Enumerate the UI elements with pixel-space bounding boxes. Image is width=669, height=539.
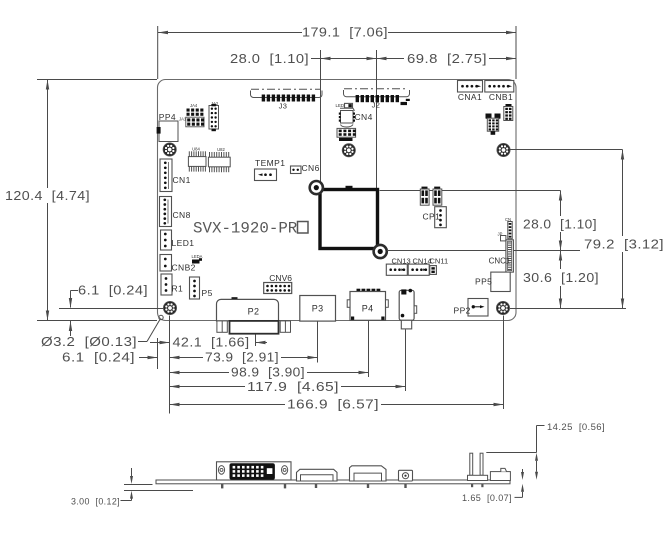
svg-text:28.0 [1.10]: 28.0 [1.10] [523, 217, 597, 232]
svg-text:CNC1: CNC1 [489, 256, 511, 265]
svg-text:120.4 [4.74]: 120.4 [4.74] [5, 188, 90, 203]
svg-text:CN8: CN8 [173, 210, 191, 220]
svg-text:LED1: LED1 [172, 238, 195, 248]
svg-text:6.1 [0.24]: 6.1 [0.24] [78, 283, 148, 298]
svg-text:CNB1: CNB1 [489, 92, 513, 102]
svg-text:CNA1: CNA1 [458, 92, 482, 102]
svg-text:CN6: CN6 [302, 163, 320, 173]
svg-text:R1: R1 [172, 284, 184, 294]
svg-text:69.8 [2.75]: 69.8 [2.75] [407, 51, 487, 66]
svg-text:79.2 [3.12]: 79.2 [3.12] [584, 237, 664, 252]
svg-text:CN4: CN4 [355, 112, 373, 122]
svg-text:1.65 [0.07]: 1.65 [0.07] [462, 493, 512, 504]
svg-text:P2: P2 [248, 307, 260, 317]
svg-text:28.0 [1.10]: 28.0 [1.10] [230, 51, 309, 66]
svg-text:P5: P5 [202, 288, 213, 298]
svg-text:P3: P3 [312, 304, 324, 314]
svg-text:U84: U84 [192, 146, 200, 151]
svg-text:14.25 [0.56]: 14.25 [0.56] [547, 422, 605, 433]
svg-text:30.6 [1.20]: 30.6 [1.20] [523, 270, 599, 285]
svg-text:P4: P4 [362, 304, 374, 314]
svg-text:CNB2: CNB2 [172, 263, 196, 273]
svg-text:73.9 [2.91]: 73.9 [2.91] [205, 350, 279, 365]
svg-text:PP2: PP2 [454, 306, 471, 316]
svg-text:6.1 [0.24]: 6.1 [0.24] [62, 350, 135, 365]
svg-text:117.9 [4.65]: 117.9 [4.65] [247, 379, 339, 394]
svg-text:42.1 [1.66]: 42.1 [1.66] [173, 335, 250, 350]
svg-text:166.9 [6.57]: 166.9 [6.57] [287, 397, 379, 412]
svg-text:98.9 [3.90]: 98.9 [3.90] [231, 365, 305, 380]
svg-text:CNV6: CNV6 [269, 273, 292, 283]
svg-text:179.1 [7.06]: 179.1 [7.06] [302, 24, 388, 39]
svg-text:J2: J2 [372, 101, 381, 110]
svg-text:TEMP1: TEMP1 [255, 158, 285, 168]
svg-text:CN11: CN11 [430, 257, 449, 266]
svg-text:PP5: PP5 [475, 277, 492, 287]
svg-text:LED: LED [336, 103, 345, 108]
svg-text:SVX-1920-PR: SVX-1920-PR [193, 220, 298, 238]
svg-text:CP1: CP1 [423, 212, 441, 222]
svg-text:JA4: JA4 [190, 103, 198, 108]
svg-text:U82: U82 [217, 147, 225, 152]
svg-text:Ø3.2 [Ø0.13]: Ø3.2 [Ø0.13] [41, 334, 137, 349]
svg-text:J3: J3 [279, 102, 288, 111]
svg-text:CN1: CN1 [173, 175, 191, 185]
svg-text:3.00 [0.12]: 3.00 [0.12] [71, 497, 120, 508]
